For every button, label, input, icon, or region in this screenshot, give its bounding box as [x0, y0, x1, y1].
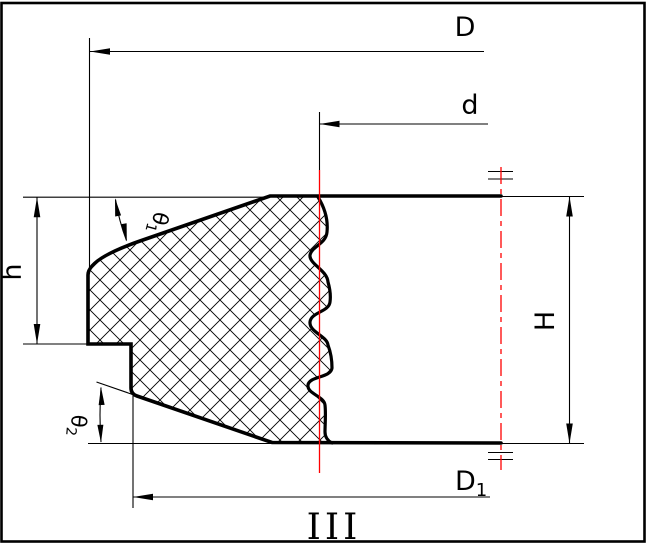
label-dim-D: D — [455, 12, 476, 43]
arrow-theta2-bottom — [97, 425, 104, 443]
label-dim-d: d — [461, 90, 478, 121]
view-label-III: III — [307, 507, 362, 547]
arrow-D1 — [133, 494, 153, 501]
label-dim-H: H — [530, 311, 561, 331]
arrow-theta1-top — [112, 198, 121, 217]
arrow-H-bottom — [566, 424, 573, 444]
arrow-D — [90, 48, 110, 55]
label-dim-D1-base: D — [455, 466, 476, 497]
section-view-III: D d h H D1 θ1 θ2 III — [0, 0, 650, 547]
label-dim-theta2: θ2 — [62, 413, 91, 437]
arrow-h-bottom — [34, 324, 41, 344]
arrow-H-top — [566, 197, 573, 217]
arrow-theta1-bottom — [121, 223, 130, 242]
label-dim-theta2-sub: 2 — [62, 426, 79, 436]
arrow-d — [320, 121, 340, 128]
technical-drawing-canvas: D d h H D1 θ1 θ2 III — [0, 0, 650, 547]
label-dim-D1: D1 — [455, 466, 487, 501]
arrow-theta2-top — [98, 387, 105, 405]
label-dim-h: h — [0, 263, 28, 280]
label-dim-D1-sub: 1 — [476, 480, 487, 501]
arrow-h-top — [34, 197, 41, 217]
